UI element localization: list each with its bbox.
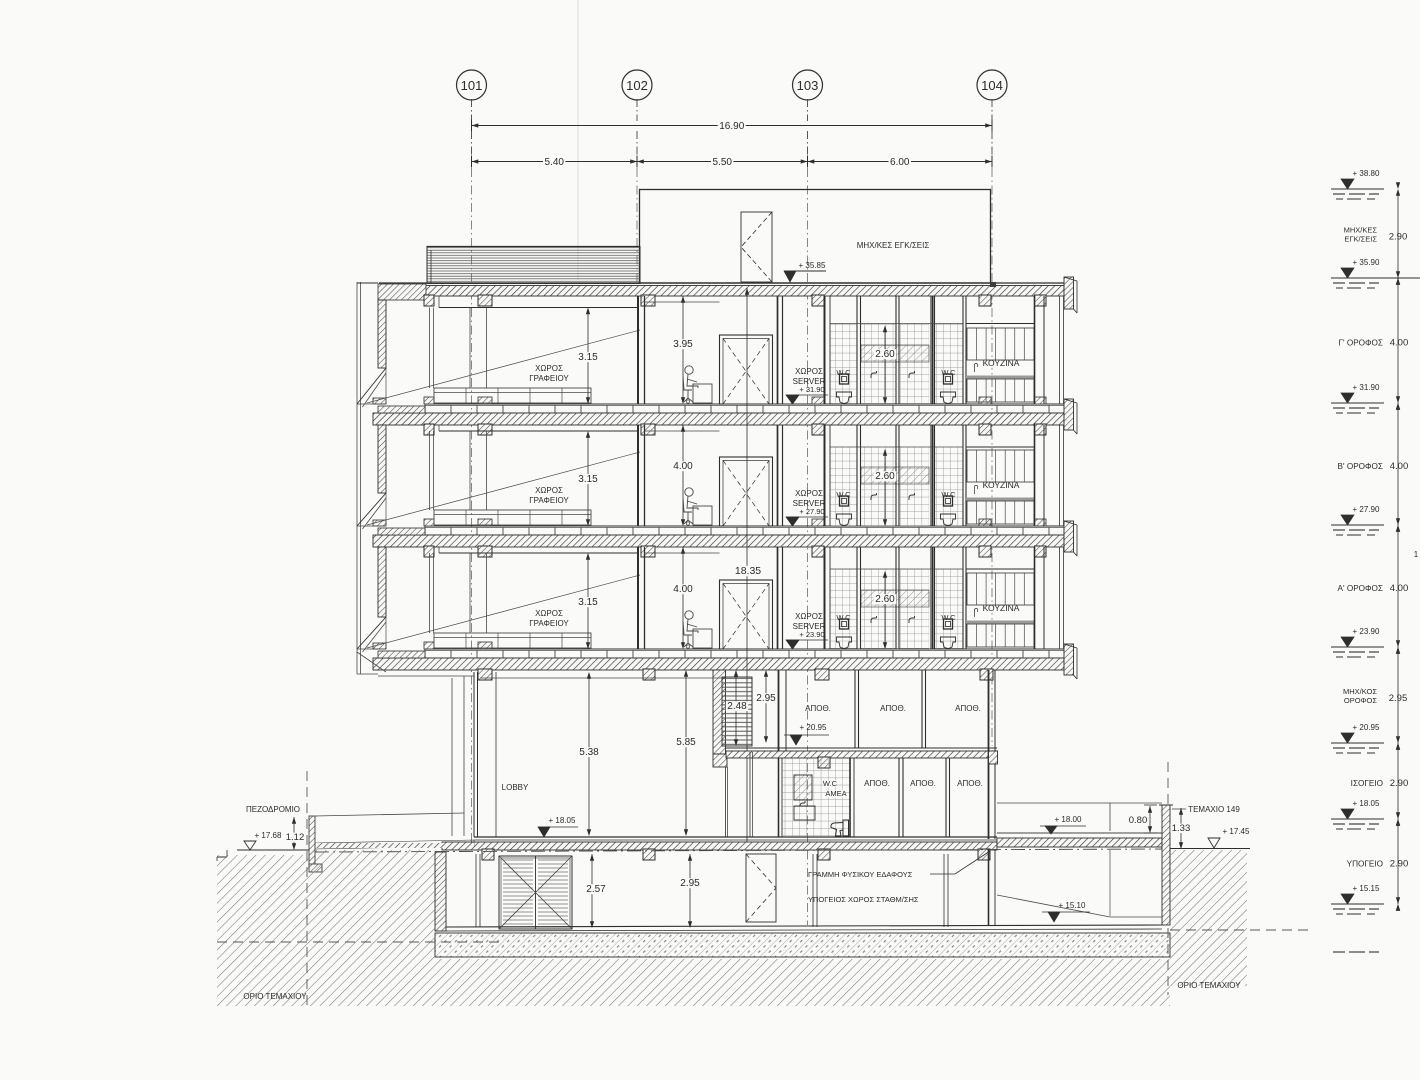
svg-text:Β' ΟΡΟΦΟΣ: Β' ΟΡΟΦΟΣ	[1338, 462, 1383, 471]
svg-text:ΟΡΟΦΟΣ: ΟΡΟΦΟΣ	[1344, 696, 1377, 705]
svg-text:+ 17.45: + 17.45	[1223, 827, 1250, 836]
svg-text:ΧΩΡΟΣ: ΧΩΡΟΣ	[535, 609, 563, 618]
svg-text:ΜΗΧ/ΚΕΣ: ΜΗΧ/ΚΕΣ	[1344, 226, 1378, 235]
svg-text:+ 20.95: + 20.95	[800, 723, 827, 732]
svg-text:W.C: W.C	[823, 779, 838, 788]
svg-text:ΑΠΟΘ.: ΑΠΟΘ.	[805, 704, 831, 713]
svg-text:ΑΠΟΘ.: ΑΠΟΘ.	[957, 779, 983, 788]
svg-text:2.60: 2.60	[875, 471, 895, 482]
svg-text:+ 18.05: + 18.05	[549, 816, 576, 825]
svg-text:ΠΕΖΟΔΡΟΜΙΟ: ΠΕΖΟΔΡΟΜΙΟ	[246, 805, 300, 814]
svg-text:ΓΡΑΦΕΙΟΥ: ΓΡΑΦΕΙΟΥ	[529, 619, 569, 628]
svg-text:0.80: 0.80	[1129, 815, 1148, 826]
svg-text:6.00: 6.00	[890, 157, 910, 168]
svg-text:ΚΟΥΖΙΝΑ: ΚΟΥΖΙΝΑ	[983, 603, 1020, 613]
svg-text:ΙΣΟΓΕΙΟ: ΙΣΟΓΕΙΟ	[1351, 779, 1383, 788]
svg-text:Γ' ΟΡΟΦΟΣ: Γ' ΟΡΟΦΟΣ	[1338, 339, 1383, 348]
svg-text:2.95: 2.95	[680, 878, 700, 889]
svg-text:1.12: 1.12	[286, 832, 305, 843]
svg-text:103: 103	[797, 78, 819, 93]
svg-text:+ 20.95: + 20.95	[1353, 723, 1380, 732]
svg-text:ΧΩΡΟΣ: ΧΩΡΟΣ	[795, 367, 823, 376]
svg-text:ΑΠΟΘ.: ΑΠΟΘ.	[955, 704, 981, 713]
svg-text:ΑΠΟΘ.: ΑΠΟΘ.	[880, 704, 906, 713]
svg-text:3.15: 3.15	[578, 474, 598, 485]
svg-text:ΧΩΡΟΣ: ΧΩΡΟΣ	[535, 364, 563, 373]
svg-text:+ 23.90: + 23.90	[799, 630, 824, 639]
svg-text:4.00: 4.00	[1390, 583, 1409, 594]
svg-text:+ 27.90: + 27.90	[799, 507, 824, 516]
svg-text:5.50: 5.50	[713, 157, 733, 168]
svg-text:+ 18.05: + 18.05	[1353, 799, 1380, 808]
svg-text:5.85: 5.85	[676, 737, 696, 748]
svg-text:+ 15.15: + 15.15	[1353, 884, 1380, 893]
svg-text:4.00: 4.00	[673, 461, 693, 472]
svg-text:3.95: 3.95	[673, 339, 693, 350]
svg-text:2.48: 2.48	[727, 701, 747, 712]
svg-text:102: 102	[626, 78, 648, 93]
svg-text:2.60: 2.60	[875, 349, 895, 360]
svg-text:2.90: 2.90	[1390, 859, 1409, 870]
svg-text:+ 35.85: + 35.85	[799, 261, 826, 270]
svg-text:4.00: 4.00	[1390, 338, 1409, 349]
svg-text:ΟΡΙΟ ΤΕΜΑΧΙΟΥ: ΟΡΙΟ ΤΕΜΑΧΙΟΥ	[1177, 981, 1241, 990]
svg-text:+ 23.90: + 23.90	[1353, 627, 1380, 636]
svg-text:ΑΠΟΘ.: ΑΠΟΘ.	[910, 779, 936, 788]
svg-text:Α' ΟΡΟΦΟΣ: Α' ΟΡΟΦΟΣ	[1338, 584, 1383, 593]
svg-text:+ 38.80: + 38.80	[1353, 169, 1380, 178]
svg-text:ΜΗΧ/ΚΟΣ: ΜΗΧ/ΚΟΣ	[1343, 687, 1377, 696]
svg-text:LOBBY: LOBBY	[502, 783, 529, 792]
svg-text:4.00: 4.00	[673, 584, 693, 595]
svg-text:2.57: 2.57	[586, 884, 606, 895]
svg-text:+ 15.10: + 15.10	[1059, 901, 1086, 910]
svg-text:ΟΡΙΟ ΤΕΜΑΧΙΟΥ: ΟΡΙΟ ΤΕΜΑΧΙΟΥ	[243, 992, 307, 1001]
svg-text:4.00: 4.00	[1390, 461, 1409, 472]
svg-text:ΓΡΑΦΕΙΟΥ: ΓΡΑΦΕΙΟΥ	[529, 374, 569, 383]
svg-text:5.40: 5.40	[545, 157, 565, 168]
svg-text:1.33: 1.33	[1172, 823, 1191, 834]
svg-text:ΥΠΟΓΕΙΟΣ ΧΩΡΟΣ ΣΤΑΘΜ/ΣΗΣ: ΥΠΟΓΕΙΟΣ ΧΩΡΟΣ ΣΤΑΘΜ/ΣΗΣ	[808, 895, 919, 904]
svg-text:ΑΜΕΑ: ΑΜΕΑ	[825, 789, 846, 798]
svg-text:1: 1	[1414, 550, 1419, 559]
svg-text:3.15: 3.15	[578, 352, 598, 363]
svg-text:+ 18.00: + 18.00	[1055, 815, 1082, 824]
svg-text:16.90: 16.90	[719, 121, 744, 132]
svg-text:ΧΩΡΟΣ: ΧΩΡΟΣ	[795, 489, 823, 498]
svg-text:ΚΟΥΖΙΝΑ: ΚΟΥΖΙΝΑ	[983, 480, 1020, 490]
svg-text:2.95: 2.95	[756, 693, 776, 704]
svg-text:2.90: 2.90	[1390, 778, 1409, 789]
svg-text:ΜΗΧ/ΚΕΣ ΕΓΚ/ΣΕΙΣ: ΜΗΧ/ΚΕΣ ΕΓΚ/ΣΕΙΣ	[857, 241, 930, 250]
svg-text:ΓΡΑΦΕΙΟΥ: ΓΡΑΦΕΙΟΥ	[529, 496, 569, 505]
svg-text:ΥΠΟΓΕΙΟ: ΥΠΟΓΕΙΟ	[1347, 860, 1383, 869]
svg-text:ΓΡΑΜΜΗ ΦΥΣΙΚΟΥ ΕΔΑΦΟΥΣ: ΓΡΑΜΜΗ ΦΥΣΙΚΟΥ ΕΔΑΦΟΥΣ	[808, 870, 913, 879]
svg-text:ΧΩΡΟΣ: ΧΩΡΟΣ	[535, 486, 563, 495]
svg-text:101: 101	[461, 78, 483, 93]
svg-text:+ 31.90: + 31.90	[1353, 383, 1380, 392]
svg-text:3.15: 3.15	[578, 597, 598, 608]
svg-text:+ 31.90: + 31.90	[799, 385, 824, 394]
svg-text:+ 17.68: + 17.68	[255, 831, 282, 840]
svg-text:ΕΓΚ/ΣΕΙΣ: ΕΓΚ/ΣΕΙΣ	[1344, 235, 1377, 244]
svg-text:ΑΠΟΘ.: ΑΠΟΘ.	[864, 779, 890, 788]
svg-text:18.35: 18.35	[735, 565, 761, 577]
svg-text:2.60: 2.60	[875, 594, 895, 605]
svg-text:+ 35.90: + 35.90	[1353, 258, 1380, 267]
svg-text:+ 27.90: + 27.90	[1353, 505, 1380, 514]
svg-text:ΧΩΡΟΣ: ΧΩΡΟΣ	[795, 612, 823, 621]
svg-text:104: 104	[981, 78, 1003, 93]
svg-text:ΚΟΥΖΙΝΑ: ΚΟΥΖΙΝΑ	[983, 358, 1020, 368]
svg-text:ΤΕΜΑΧΙΟ 149: ΤΕΜΑΧΙΟ 149	[1188, 805, 1240, 814]
svg-text:5.38: 5.38	[579, 747, 599, 758]
